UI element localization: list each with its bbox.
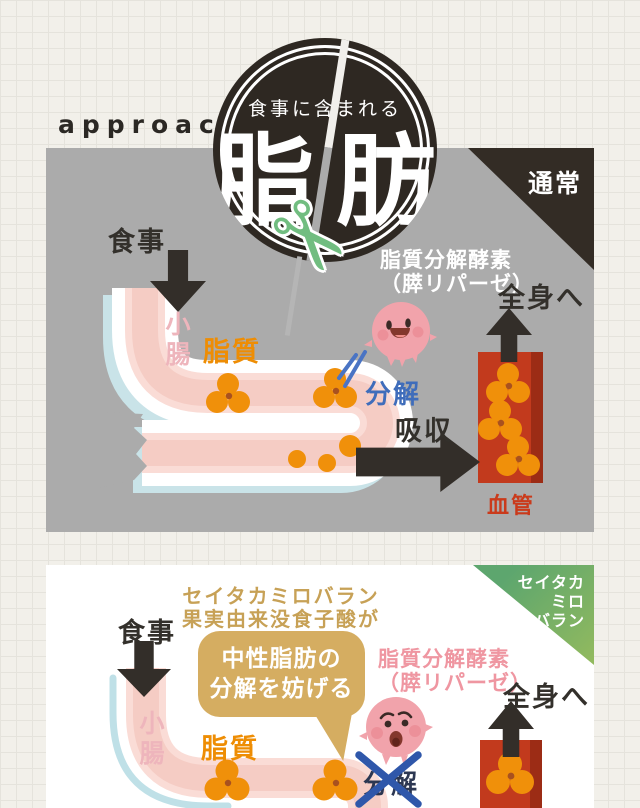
fat-cluster-vessel — [486, 752, 534, 794]
headline-line1: セイタカミロバラン — [141, 585, 421, 608]
systemic-label-2: 全身へ — [503, 675, 590, 714]
meal-label: 食事 — [108, 220, 166, 259]
fat-cluster-vessel — [486, 363, 530, 403]
absorption-label: 吸収 — [395, 409, 453, 448]
blocked-x-icon — [354, 751, 424, 808]
enzyme-label-line1: 脂質分解酵素 — [378, 647, 532, 671]
lipid-label-2: 脂質 — [201, 727, 259, 766]
lipase-happy-face — [364, 302, 437, 367]
corner-tag-label: 通常 — [528, 164, 582, 200]
speech-bubble: 中性脂肪の 分解を妨げる — [198, 631, 365, 717]
systemic-label: 全身へ — [498, 276, 585, 315]
meal-label-2: 食事 — [118, 611, 176, 650]
corner-label-line2: ミロ — [518, 592, 585, 611]
lipid-label: 脂質 — [203, 330, 261, 369]
bubble-line2: 分解を妨げる — [198, 674, 365, 704]
blood-vessel-label: 血管 — [487, 488, 535, 520]
enzyme-label-line1: 脂質分解酵素 — [380, 248, 534, 272]
fat-cluster-vessel — [496, 436, 540, 476]
bubble-line1: 中性脂肪の — [198, 644, 365, 674]
headline-line2: 果実由来没食子酸が — [141, 608, 421, 631]
corner-label-line1: セイタカ — [518, 573, 585, 592]
fat-cluster-vessel — [478, 400, 522, 440]
breakdown-label: 分解 — [365, 374, 421, 411]
infographic: approach — [0, 0, 640, 808]
gallic-acid-headline: セイタカミロバラン 果実由来没食子酸が — [141, 585, 421, 631]
small-intestine-label-2: 小腸 — [132, 710, 168, 770]
small-intestine-label: 小腸 — [158, 311, 194, 371]
panel-seitaka: セイタカ ミロ バラン セイタカミロバラン 果実由来没食子酸が 中性脂肪の 分解… — [46, 565, 594, 808]
